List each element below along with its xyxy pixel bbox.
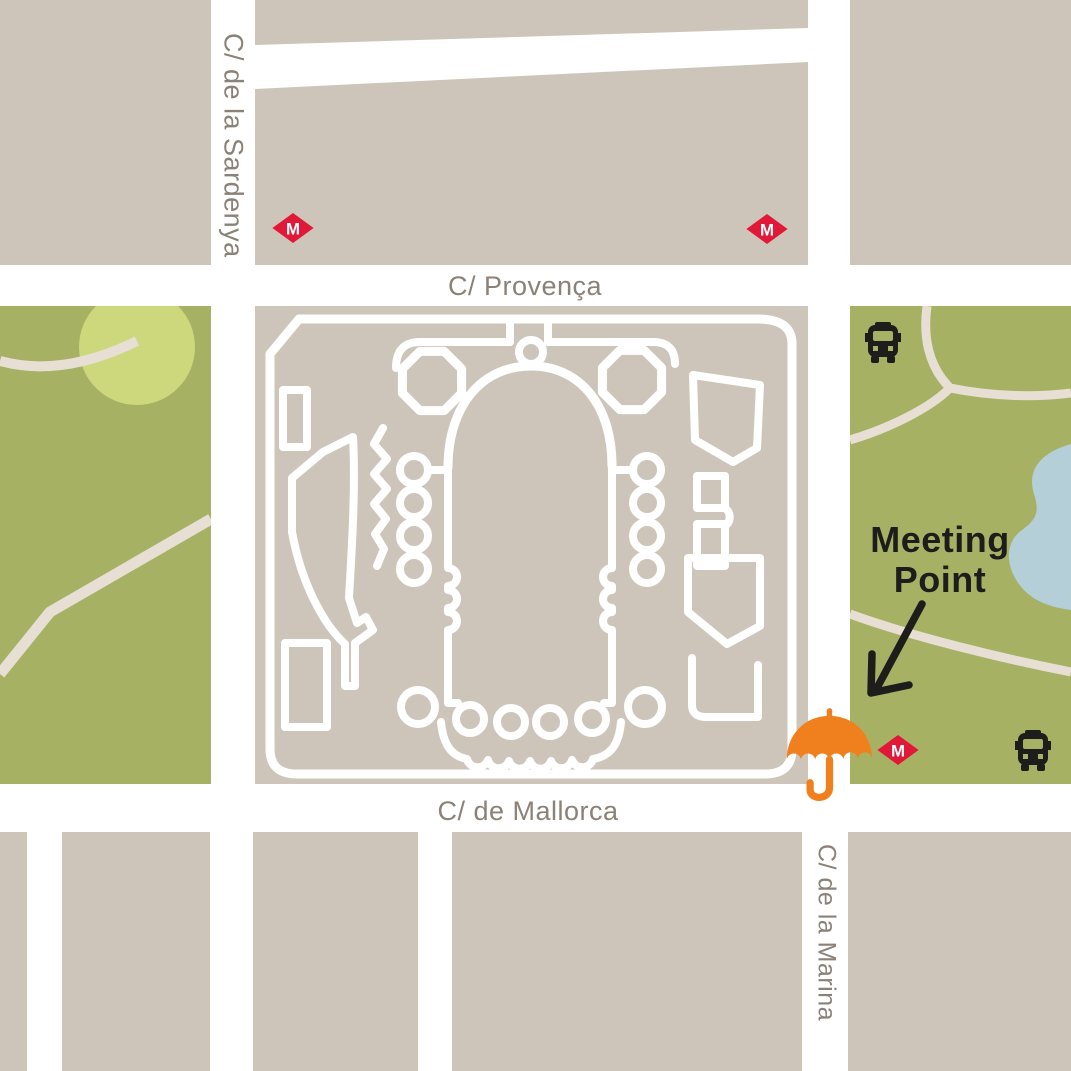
metro-diamond-icon: M xyxy=(272,213,314,243)
barcelona-meeting-point-map: C/ de la Sardenya C/ Provença xyxy=(0,0,1071,1071)
bus-icon xyxy=(1015,730,1051,772)
metro-letter: M xyxy=(760,221,774,240)
city-block-bottom-1 xyxy=(0,832,27,1071)
metro-diamond-icon: M xyxy=(877,735,919,765)
meeting-point-line1: Meeting xyxy=(845,520,1035,560)
meeting-point-label: Meeting Point xyxy=(845,520,1035,601)
bus-icon xyxy=(865,322,901,364)
umbrella-meeting-point-icon xyxy=(781,706,878,815)
street-label-sardenya: C/ de la Sardenya xyxy=(213,28,253,263)
city-block-top-left xyxy=(0,0,211,265)
diagonal-street xyxy=(255,0,808,265)
park-left xyxy=(0,306,211,784)
metro-letter: M xyxy=(891,742,905,761)
city-block-bottom-5 xyxy=(848,832,1071,1071)
street-name: C/ de la Marina xyxy=(812,844,841,1021)
city-block-bottom-3 xyxy=(253,832,418,1071)
city-block-top-middle xyxy=(255,0,808,265)
street-label-marina: C/ de la Marina xyxy=(804,833,848,1033)
street-label-provenca: C/ Provença xyxy=(425,271,625,302)
meeting-point-line2: Point xyxy=(845,560,1035,600)
city-block-bottom-2 xyxy=(62,832,210,1071)
street-name: C/ de la Sardenya xyxy=(218,33,249,258)
sagrada-familia-block xyxy=(255,306,808,784)
sagrada-familia-floorplan xyxy=(255,306,808,784)
street-name: C/ Provença xyxy=(448,271,602,301)
arrow-down-left-icon xyxy=(852,596,936,710)
street-label-mallorca: C/ de Mallorca xyxy=(428,796,628,827)
street-name: C/ de Mallorca xyxy=(437,796,618,826)
city-block-bottom-4 xyxy=(452,832,802,1071)
city-block-top-right xyxy=(850,0,1071,265)
park-paths xyxy=(0,306,211,784)
metro-letter: M xyxy=(286,220,300,239)
metro-diamond-icon: M xyxy=(746,214,788,244)
